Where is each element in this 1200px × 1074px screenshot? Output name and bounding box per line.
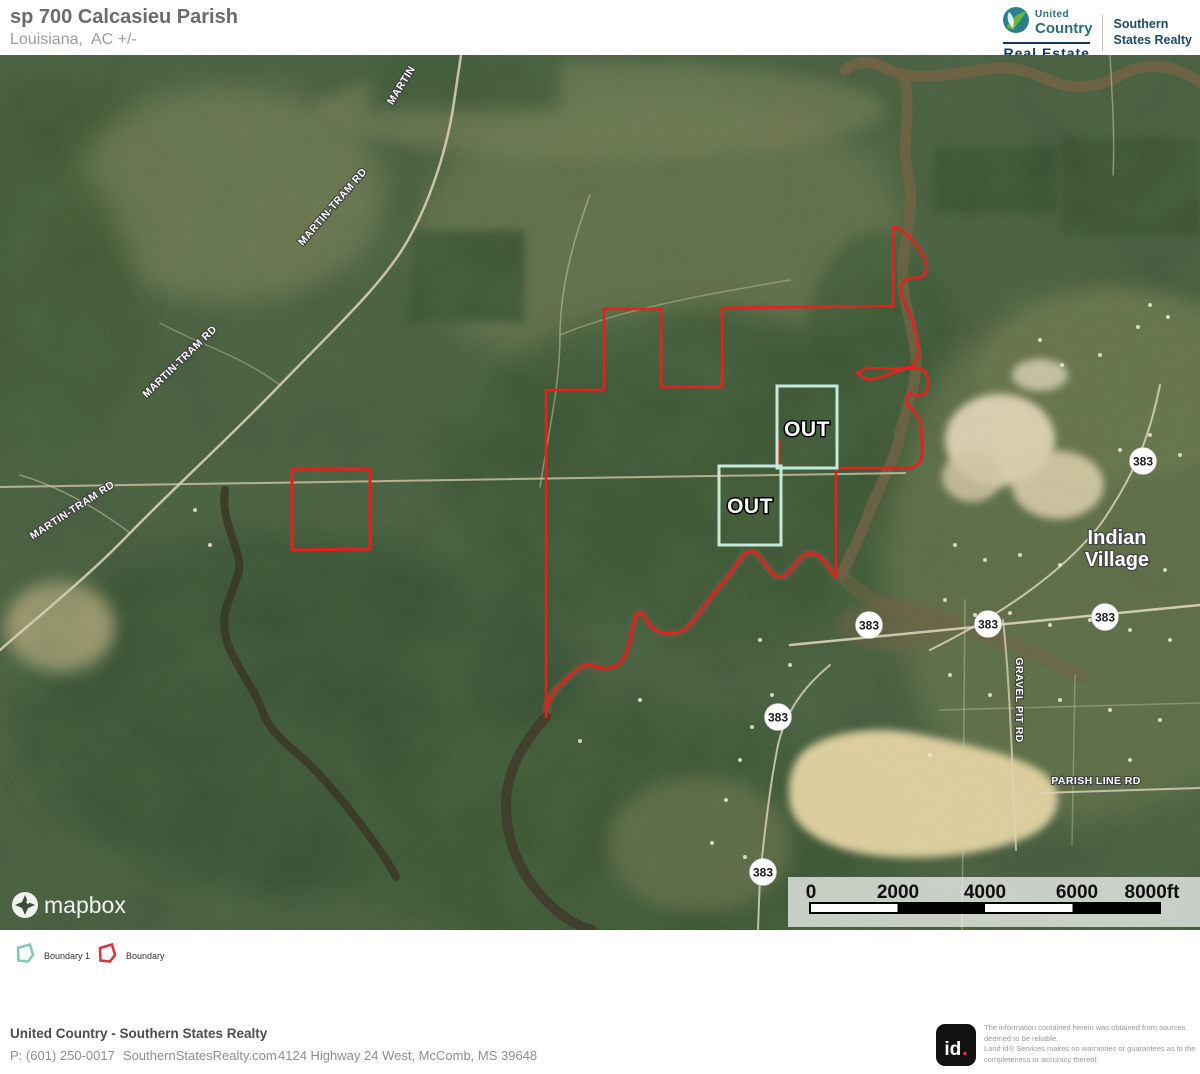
footer: United Country - Southern States Realty … (0, 1018, 1200, 1074)
scale-tick-6000: 6000 (1056, 882, 1098, 903)
legend-label: Boundary (126, 951, 165, 961)
out-label-south: OUT (727, 495, 773, 518)
shield-383: 383 (1133, 455, 1153, 469)
mapbox-wordmark: mapbox (44, 892, 126, 918)
boundary-swatch-icon (96, 942, 118, 969)
legend-item-boundary: Boundary (96, 942, 165, 969)
logo-united-text: United (1035, 10, 1093, 20)
scale-tick-8000ft: 8000ft (1125, 882, 1181, 903)
flyer-page: sp 700 Calcasieu Parish Louisiana, AC +/… (0, 0, 1200, 1074)
place-label-line2: Village (1085, 549, 1149, 571)
scale-tick-0: 0 (806, 882, 817, 903)
shield-383: 383 (753, 866, 773, 880)
land-id-logo: id. (936, 1024, 976, 1066)
boundary1-swatch-icon (14, 942, 36, 969)
legend: Boundary 1 Boundary (0, 930, 1200, 980)
shield-383: 383 (978, 618, 998, 632)
address: 4124 Highway 24 West, McComb, MS 39648 (278, 1048, 537, 1063)
header: sp 700 Calcasieu Parish Louisiana, AC +/… (0, 0, 1200, 55)
shield-383: 383 (859, 619, 879, 633)
road-label-parish-line: PARISH LINE RD (1051, 775, 1140, 787)
scale-tick-4000: 4000 (964, 882, 1006, 903)
legend-label: Boundary 1 (44, 951, 90, 961)
logo-southern-text: Southern (1113, 17, 1192, 33)
southern-states-realty-logo: Southern States Realty (1113, 17, 1192, 48)
shield-383: 383 (1095, 611, 1115, 625)
place-label-indian-village: Indian Village (1085, 527, 1149, 571)
brand-block: United Country Real Estate Southern Stat… (1001, 5, 1192, 61)
legend-item-boundary1: Boundary 1 (14, 942, 90, 969)
scale-tick-2000: 2000 (877, 882, 919, 903)
united-country-logo: United Country Real Estate (1001, 5, 1093, 61)
land-id-text: id (944, 1039, 961, 1060)
satellite-map-canvas[interactable]: OUT OUT MARTIN MARTIN-TRAM RD MARTIN-TRA… (0, 55, 1200, 930)
road-label-gravel-pit: GRAVEL PIT RD (1013, 657, 1025, 742)
page-title: sp 700 Calcasieu Parish (10, 6, 238, 29)
phone-number: P: (601) 250-0017 (10, 1048, 115, 1063)
disclaimer-line: deemed to be reliable. (984, 1034, 1196, 1045)
globe-leaf-icon (1001, 5, 1031, 40)
map-svg: OUT OUT MARTIN MARTIN-TRAM RD MARTIN-TRA… (0, 55, 1200, 930)
mapbox-logo[interactable]: mapbox (12, 892, 126, 918)
page-subtitle: Louisiana, AC +/- (10, 31, 137, 49)
scale-bar: 0 2000 4000 6000 8000ft (788, 877, 1200, 927)
out-label-north: OUT (784, 418, 830, 441)
mapbox-icon-dot (26, 900, 29, 903)
logo-states-realty-text: States Realty (1113, 33, 1192, 49)
shield-383: 383 (768, 711, 788, 725)
land-id-dot: . (962, 1039, 967, 1060)
company-name: United Country - Southern States Realty (10, 1026, 267, 1041)
grain-overlay (0, 55, 1200, 930)
place-label-line1: Indian (1088, 527, 1147, 549)
disclaimer-line: completeness or accuracy thereof. (984, 1055, 1196, 1066)
brand-divider (1102, 15, 1103, 51)
logo-country-text: Country (1035, 21, 1093, 36)
disclaimer-line: The information contained herein was obt… (984, 1023, 1196, 1034)
disclaimer: The information contained herein was obt… (984, 1023, 1196, 1065)
website: SouthernStatesRealty.com (123, 1048, 277, 1063)
disclaimer-line: Land id® Services makes no warranties or… (984, 1044, 1196, 1055)
